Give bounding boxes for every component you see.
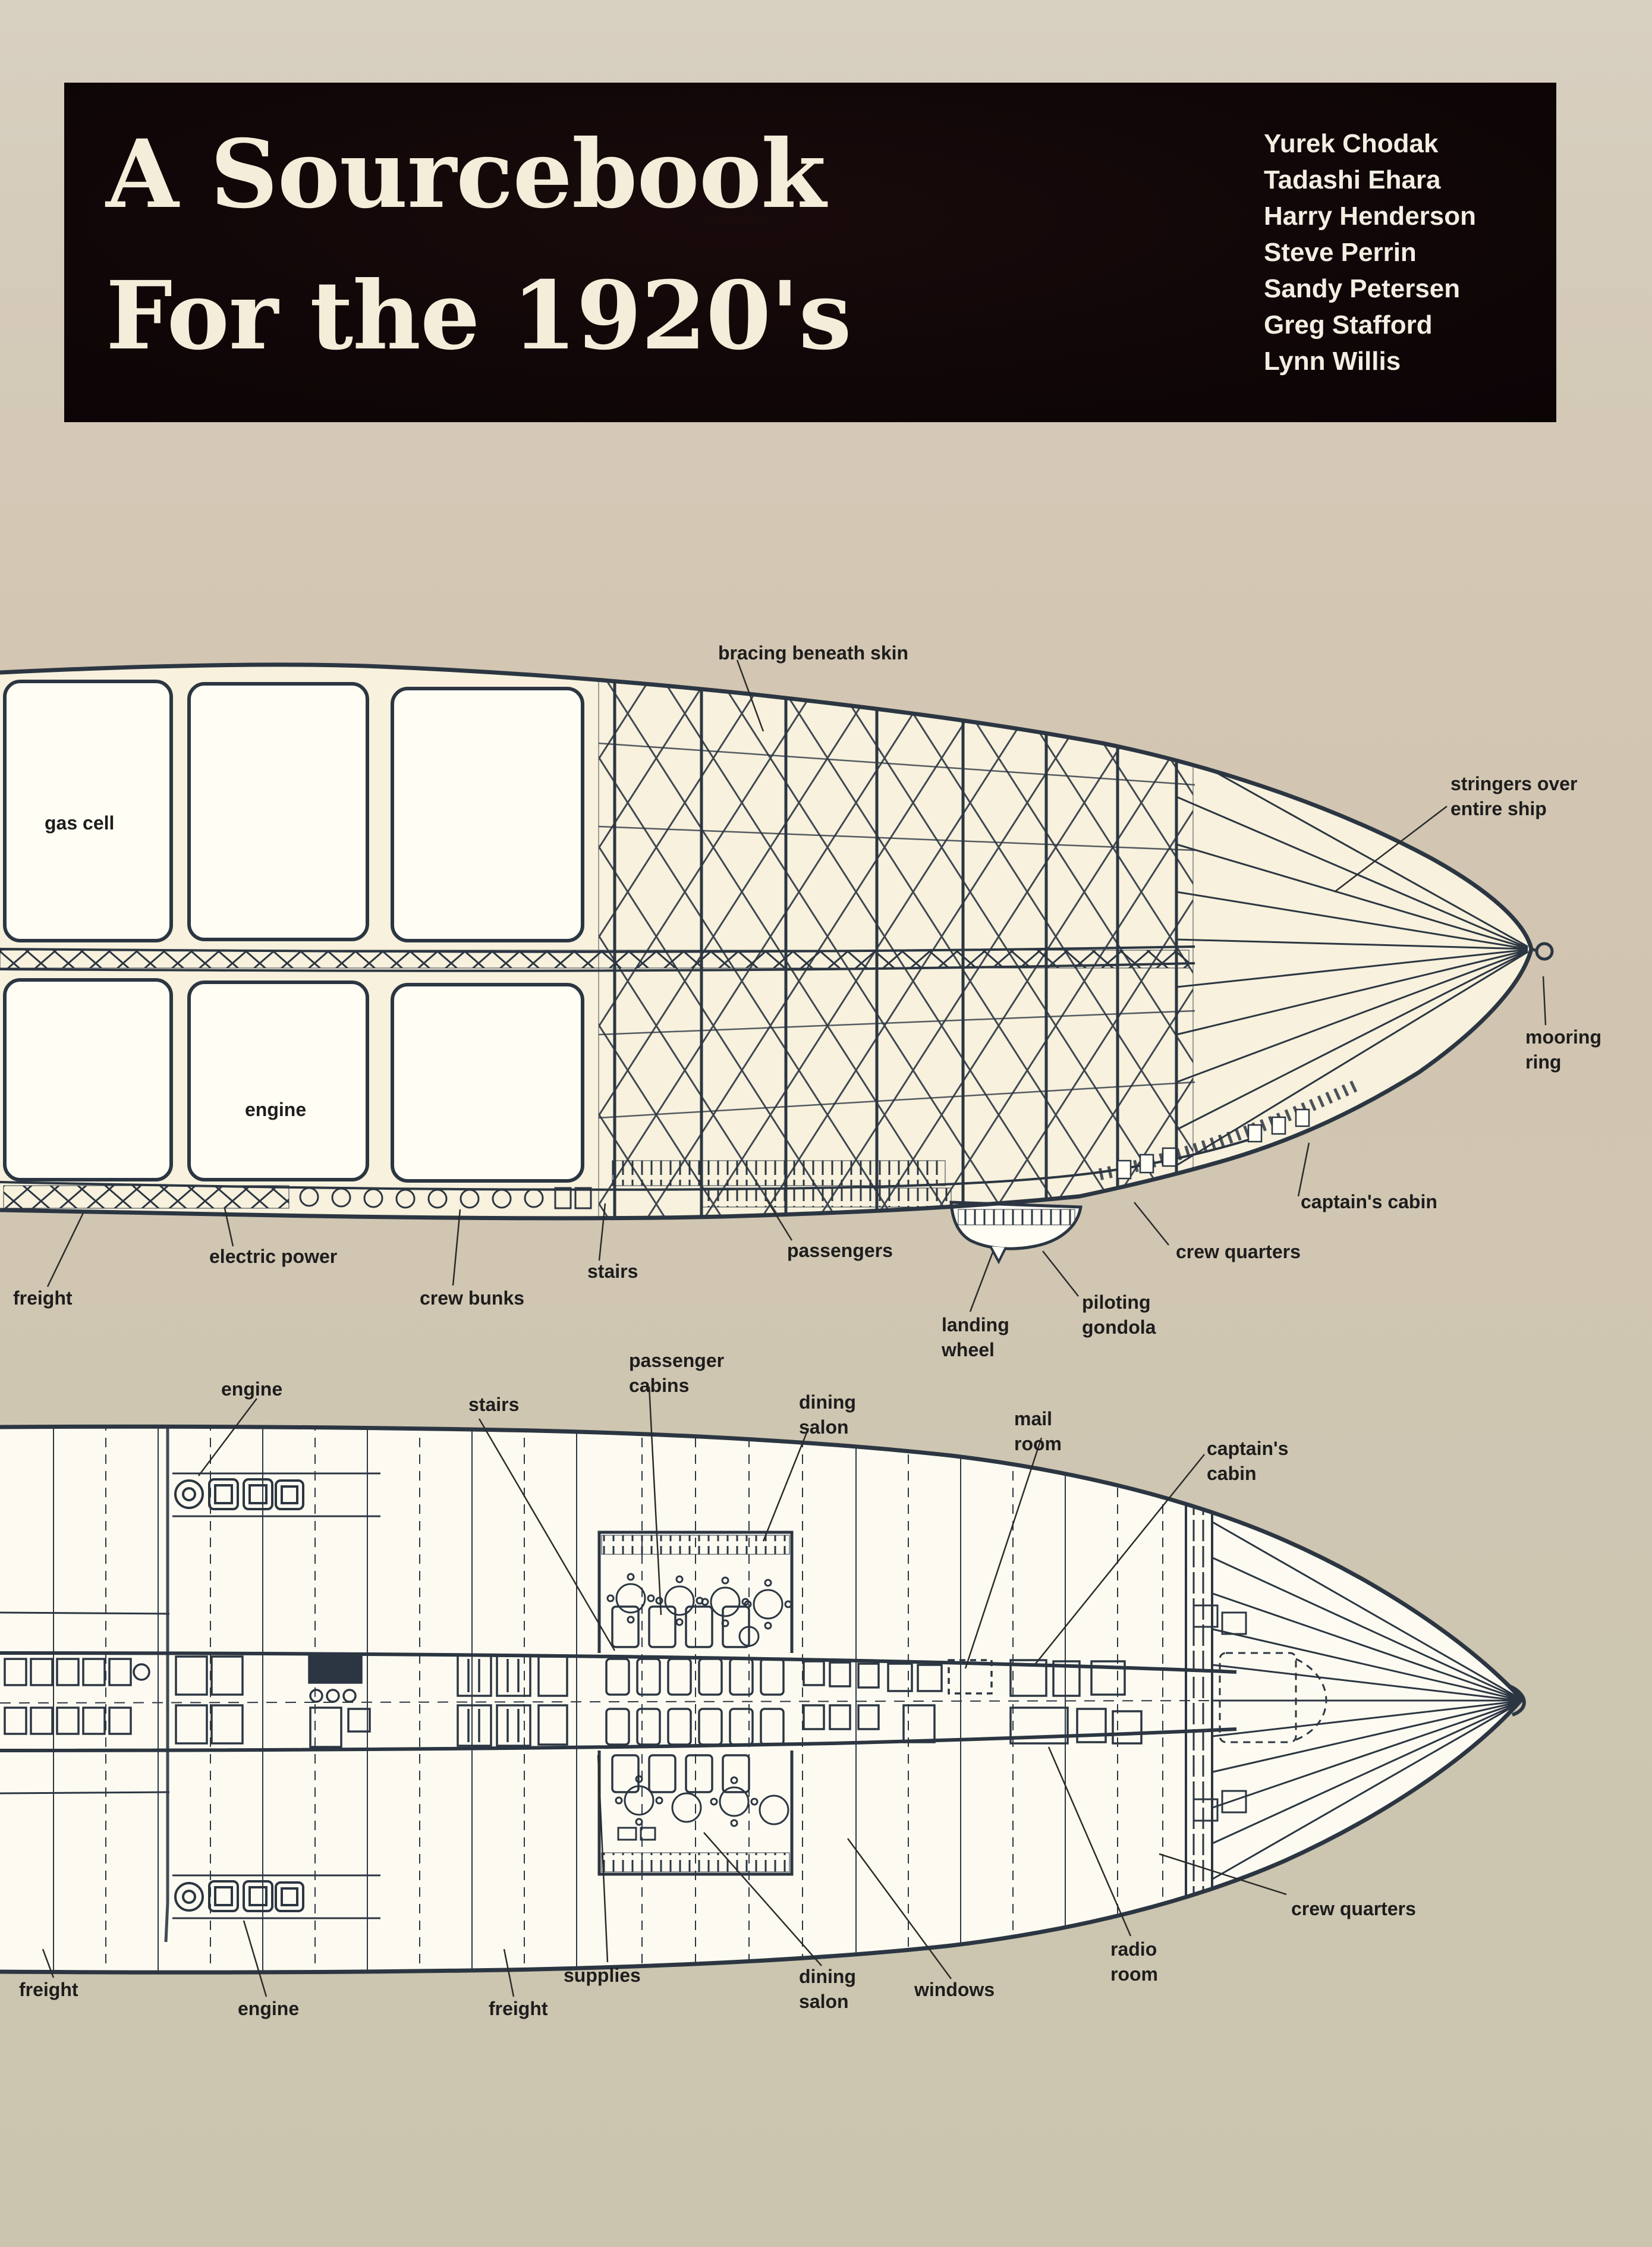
label-piloting-gondola: piloting gondola: [1082, 1290, 1156, 1340]
label-gas-cell: gas cell: [45, 811, 114, 836]
label-passenger-cabins: passenger cabins: [629, 1349, 724, 1398]
title-block: A Sourcebook For the 1920's Yurek Chodak…: [64, 83, 1556, 422]
label-stairs-side: stairs: [587, 1259, 638, 1284]
author-name: Tadashi Ehara: [1264, 162, 1476, 198]
author-name: Greg Stafford: [1264, 307, 1476, 343]
label-engine-side: engine: [245, 1098, 306, 1123]
label-electric-power: electric power: [209, 1245, 337, 1269]
label-captains-cabin-plan: captain's cabin: [1207, 1437, 1288, 1486]
label-bracing-beneath-skin: bracing beneath skin: [718, 641, 908, 666]
label-dining-salon-top: dining salon: [799, 1390, 856, 1440]
author-list: Yurek Chodak Tadashi Ehara Harry Henders…: [1264, 125, 1476, 379]
label-passengers: passengers: [787, 1239, 893, 1264]
label-landing-wheel: landing wheel: [942, 1313, 1009, 1362]
label-radio-room: radio room: [1110, 1937, 1158, 1987]
label-supplies: supplies: [564, 1963, 641, 1988]
plan-view-drawing: [0, 1421, 1524, 1980]
label-stairs-plan: stairs: [468, 1393, 519, 1418]
label-windows: windows: [914, 1978, 995, 2003]
book-title-line2: For the 1920's: [106, 261, 851, 371]
mooring-ring-icon: [1531, 944, 1552, 959]
book-title-line1: A Sourcebook: [106, 120, 826, 230]
author-name: Yurek Chodak: [1264, 125, 1476, 162]
book-cover-page: A Sourcebook For the 1920's Yurek Chodak…: [0, 0, 1652, 2247]
author-name: Sandy Petersen: [1264, 271, 1476, 307]
author-name: Steve Perrin: [1264, 234, 1476, 271]
label-stringers: stringers over entire ship: [1450, 772, 1577, 821]
label-captains-cabin-side: captain's cabin: [1301, 1190, 1437, 1215]
label-crew-bunks: crew bunks: [420, 1286, 524, 1311]
label-freight-side: freight: [13, 1286, 73, 1311]
side-view-drawing: [0, 660, 1552, 1262]
label-freight-plan-mid: freight: [489, 1997, 548, 2022]
label-mail-room: mail room: [1014, 1407, 1062, 1456]
label-freight-plan-left: freight: [19, 1978, 78, 2003]
label-mooring-ring: mooring ring: [1525, 1025, 1601, 1074]
author-name: Lynn Willis: [1264, 343, 1476, 379]
label-crew-quarters-plan: crew quarters: [1291, 1897, 1416, 1922]
label-dining-salon-bottom: dining salon: [799, 1965, 856, 2014]
label-crew-quarters-side: crew quarters: [1176, 1240, 1301, 1265]
label-engine-plan-bottom: engine: [238, 1997, 299, 2022]
author-name: Harry Henderson: [1264, 198, 1476, 234]
label-engine-plan-top: engine: [221, 1377, 282, 1402]
